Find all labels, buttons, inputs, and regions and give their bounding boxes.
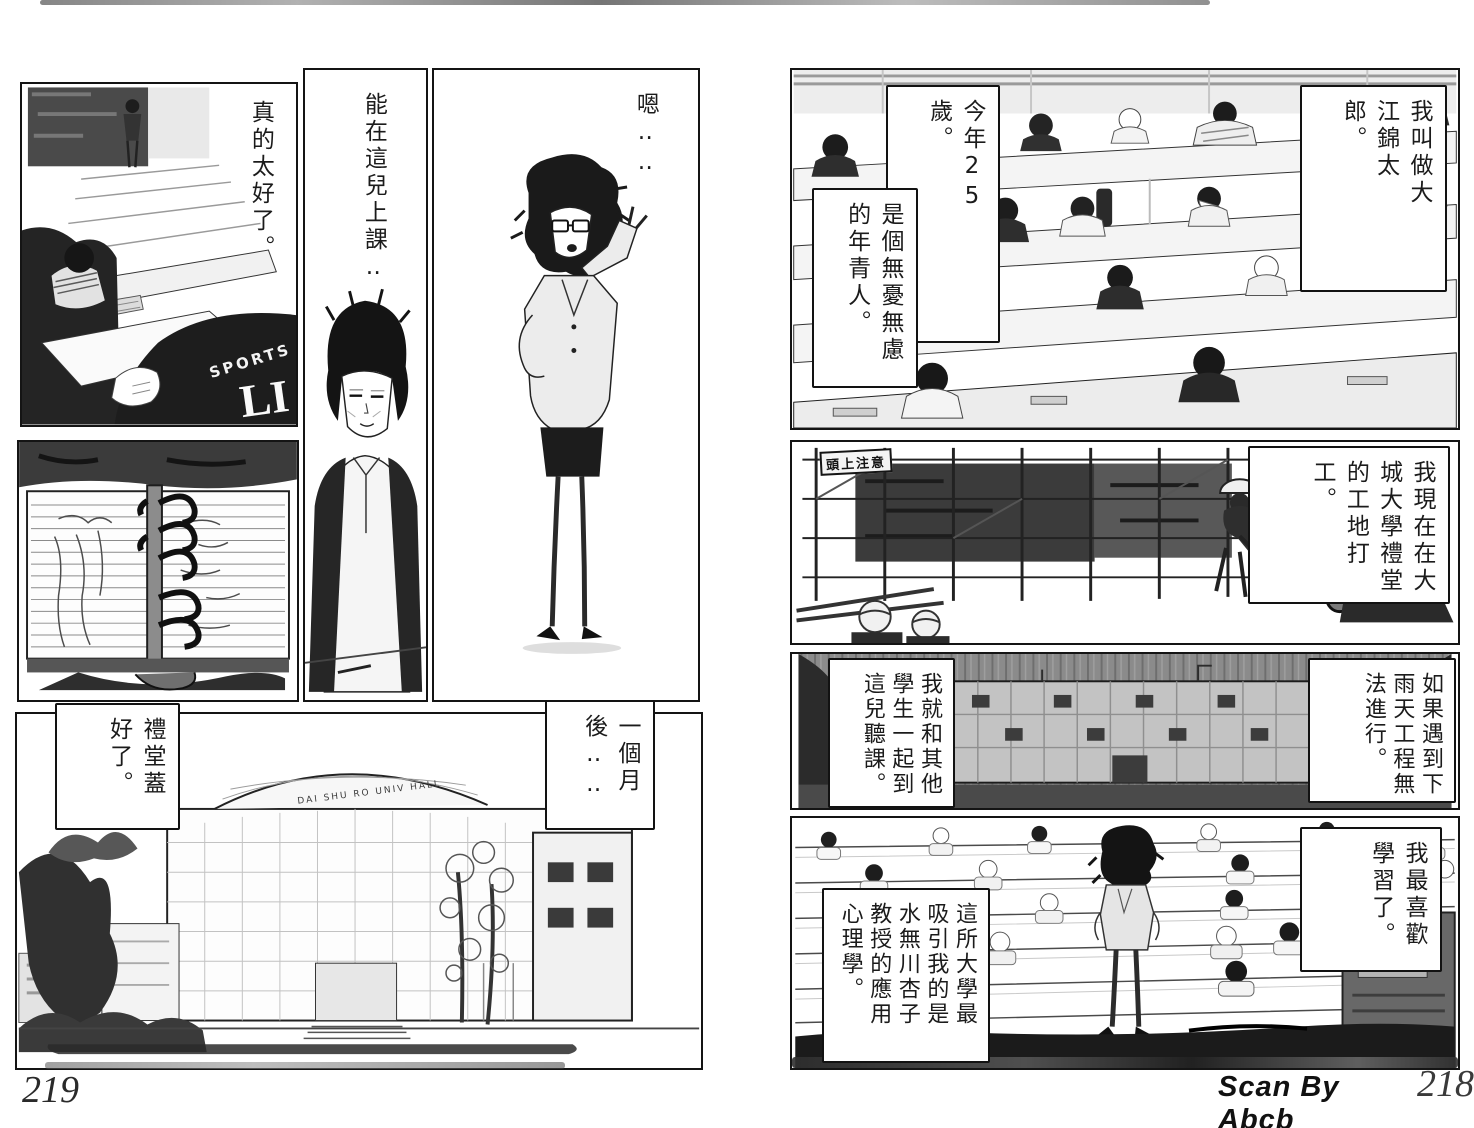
scan-smudge-top (40, 0, 1210, 5)
caption-rain-stops-work: 如果遇到下雨天工程無法進行。 (1308, 658, 1456, 803)
caption-psychology-professor: 這所大學最吸引我的是水無川杏子教授的應用心理學。 (822, 888, 990, 1063)
bubble-one-month-later: 一個月後‥‥ (545, 700, 655, 830)
caption-hmm: 嗯‥‥ (628, 92, 661, 206)
scan-credit: Scan By Abcb 218 (1218, 1062, 1474, 1128)
caption-love-studying: 我最喜歡學習了。 (1300, 827, 1442, 972)
caption-so-great: 真的太好了。 (243, 100, 276, 268)
watch-head-sign: 頭上注意 (819, 448, 892, 476)
scan-credit-text: Scan By Abcb (1218, 1071, 1411, 1128)
student-figures-dark (22, 227, 121, 424)
jacket-text-li: LI (237, 369, 292, 427)
notebook-artwork (19, 442, 297, 700)
caption-attend-with-students: 我就和其他學生一起到這兒聽課。 (828, 658, 955, 808)
bubble-hall-built: 禮堂蓋好了。 (55, 703, 180, 830)
panel-notebook (17, 440, 299, 702)
rain-building (945, 666, 1315, 783)
caption-carefree-youth: 是個無憂無慮的年青人。 (812, 188, 918, 388)
caption-attend-class: 能在這兒上課‥ (356, 92, 389, 290)
page-number-right: 218 (1417, 1062, 1474, 1106)
caption-my-name: 我叫做大江錦太郎。 (1300, 85, 1447, 292)
manga-spread: SPORTS LI 真的太好了。 (0, 0, 1474, 1128)
page-number-left: 219 (22, 1068, 79, 1112)
scan-smudge-bottom-left (45, 1062, 565, 1069)
caption-construction-job: 我現在在大城大學禮堂的工地打工。 (1248, 446, 1450, 604)
